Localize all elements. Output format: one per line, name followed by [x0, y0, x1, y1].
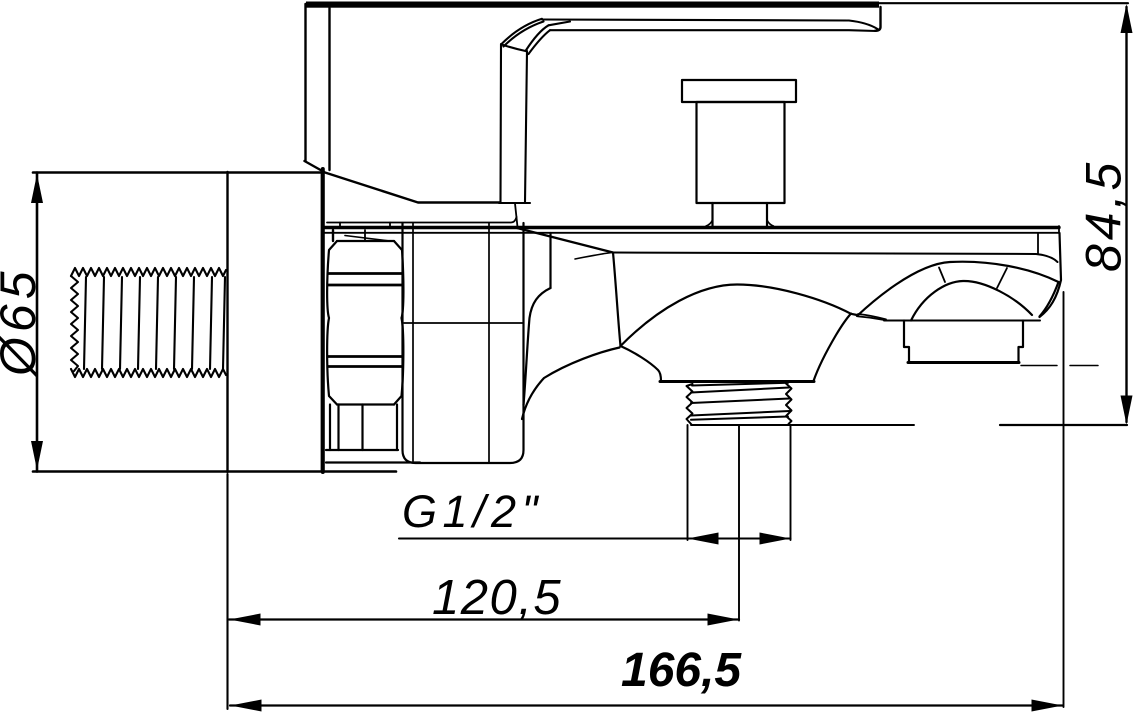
svg-text:120,5: 120,5: [432, 571, 562, 625]
svg-text:Ø65: Ø65: [0, 266, 46, 378]
svg-text:84,5: 84,5: [1076, 159, 1132, 272]
svg-text:166,5: 166,5: [621, 644, 742, 697]
svg-text:G1/2": G1/2": [402, 486, 543, 537]
